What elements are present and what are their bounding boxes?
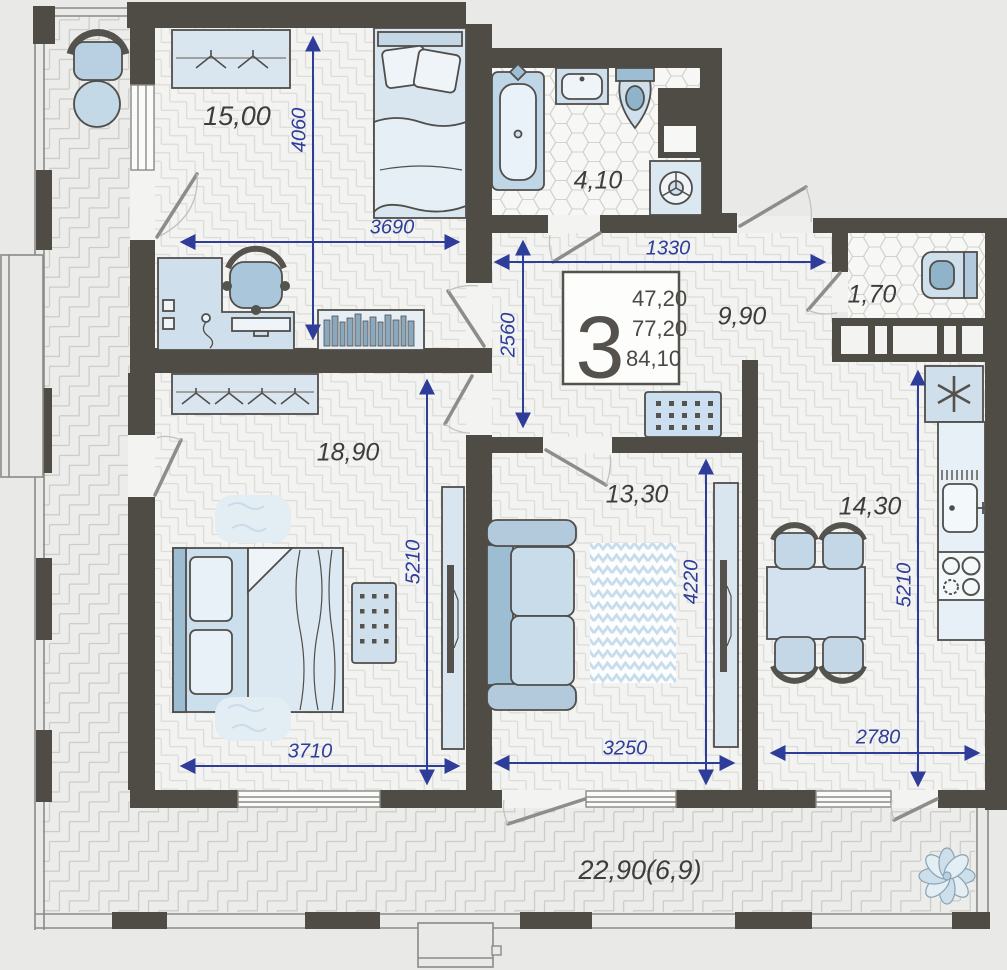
room-label-wc: 1,70 — [848, 281, 897, 309]
dim-5210-bedroom: 5210 — [402, 540, 424, 585]
room-label-hallway: 9,90 — [718, 303, 767, 331]
zigzag-rug-icon — [590, 543, 676, 683]
washing-machine-icon — [650, 161, 702, 215]
room-label-living: 13,30 — [606, 481, 669, 509]
dim-5210-kitchen: 5210 — [893, 563, 915, 608]
unit-area-total: 77,20 — [632, 316, 687, 341]
floor-plan-page: 3 47,20 77,20 84,10 — [0, 0, 1007, 970]
unit-rooms-count: 3 — [576, 297, 625, 396]
wardrobe-icon — [172, 30, 290, 88]
dim-2560: 2560 — [497, 313, 519, 359]
dining-table-icon — [767, 567, 865, 639]
unit-area-full: 84,10 — [626, 346, 681, 371]
window-bedroom-master-bottom — [238, 791, 380, 807]
dim-4060: 4060 — [288, 108, 310, 153]
dim-3250: 3250 — [603, 737, 648, 759]
dim-3710: 3710 — [288, 740, 333, 762]
room-label-bathroom: 4,10 — [574, 167, 623, 195]
dim-1330: 1330 — [646, 237, 691, 259]
plant-icon — [919, 848, 975, 904]
sofa-icon — [487, 520, 576, 710]
window-bedroom-left — [131, 85, 154, 170]
tv-cabinet-bedroom-icon — [442, 487, 464, 749]
stove-icon — [938, 552, 985, 600]
room-label-bedroom: 15,00 — [203, 101, 271, 131]
room-label-kitchen: 14,30 — [839, 493, 902, 521]
unit-area-living: 47,20 — [632, 286, 687, 311]
shoe-cabinet-icon — [645, 392, 721, 437]
floor-plan-canvas: 3 47,20 77,20 84,10 — [0, 0, 1007, 970]
radiator-icon — [352, 583, 396, 663]
double-bed-icon — [173, 548, 343, 712]
built-in-shelf-unit — [832, 318, 990, 362]
window-living-bottom — [586, 791, 676, 807]
wall-toilet-icon — [922, 252, 977, 298]
dim-4220: 4220 — [680, 560, 702, 605]
tv-cabinet-living-icon — [714, 483, 738, 747]
exterior-ledge-bottom — [418, 923, 501, 967]
unit-info-box: 3 47,20 77,20 84,10 — [563, 272, 687, 396]
exterior-ledge-left — [1, 255, 43, 477]
rug-icon-bottom — [215, 697, 291, 741]
wardrobe-master-icon — [172, 374, 318, 414]
bookshelf-icon — [318, 310, 424, 350]
room-label-bedroom-master: 18,90 — [317, 439, 380, 467]
coffee-table-icon — [74, 81, 120, 127]
dim-3690: 3690 — [370, 216, 415, 238]
ventilation-shaft — [658, 88, 702, 158]
bathtub-icon — [492, 64, 544, 190]
fridge-icon — [925, 366, 983, 422]
window-kitchen-bottom — [816, 791, 891, 807]
room-label-terrace: 22,90(6,9) — [577, 855, 701, 885]
dim-2780: 2780 — [855, 726, 901, 748]
single-bed-icon — [374, 28, 466, 218]
rug-icon-top — [215, 495, 291, 543]
